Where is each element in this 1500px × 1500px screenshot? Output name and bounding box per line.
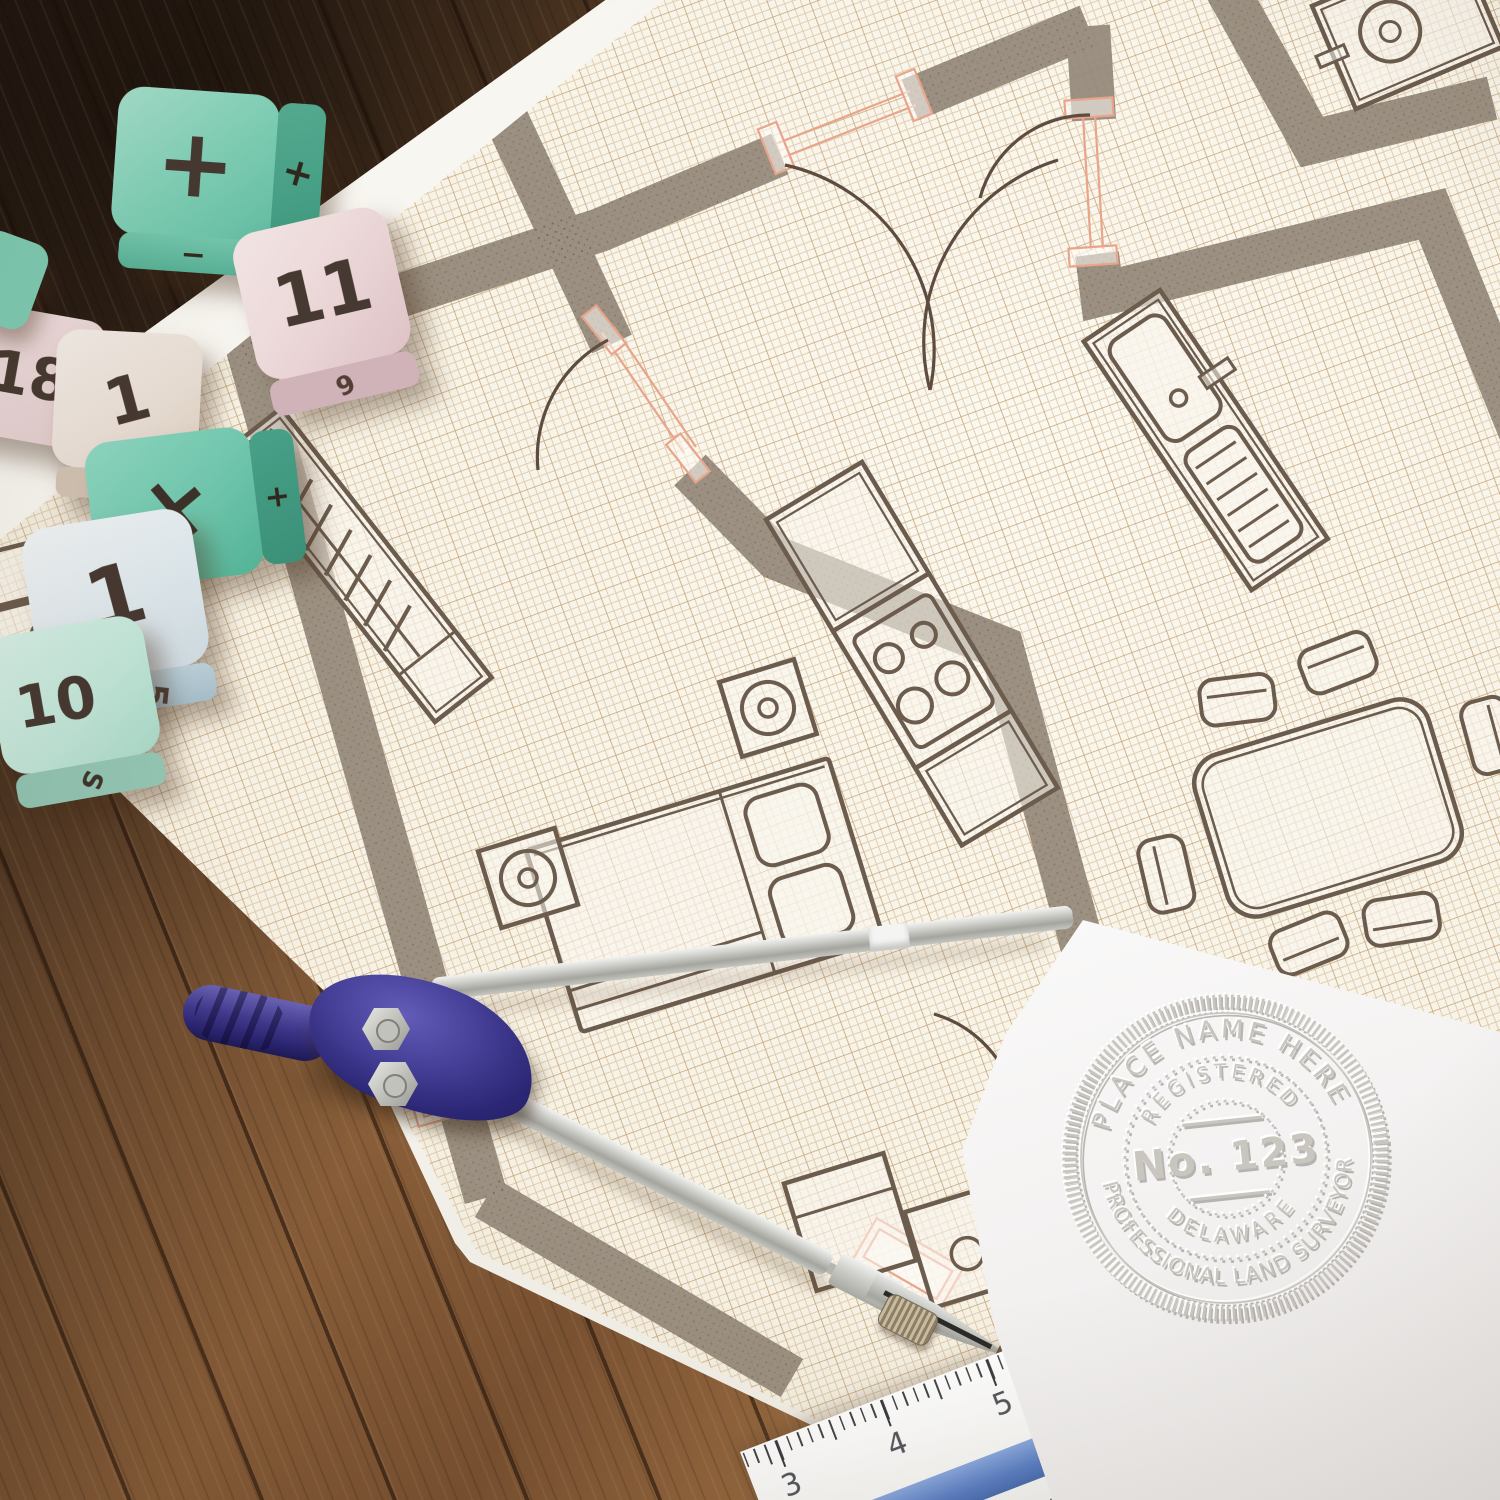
- dining-chair: [1198, 672, 1277, 727]
- ruler-number: 4: [882, 1425, 912, 1465]
- die-ten-mint: 10 S: [0, 610, 181, 817]
- leg-sleeve: [868, 923, 911, 952]
- ruler-number: 5: [988, 1384, 1018, 1424]
- photo-scene: + + − 11 6 18 1 × + 1 5 10: [0, 0, 1500, 1500]
- ruler-number: 3: [777, 1465, 807, 1500]
- embossed-seal: PLACE NAME HERE PROFESSIONAL LAND SURVEY…: [1026, 958, 1426, 1358]
- dining-chair: [1362, 891, 1442, 948]
- plus-glyph: +: [152, 107, 239, 222]
